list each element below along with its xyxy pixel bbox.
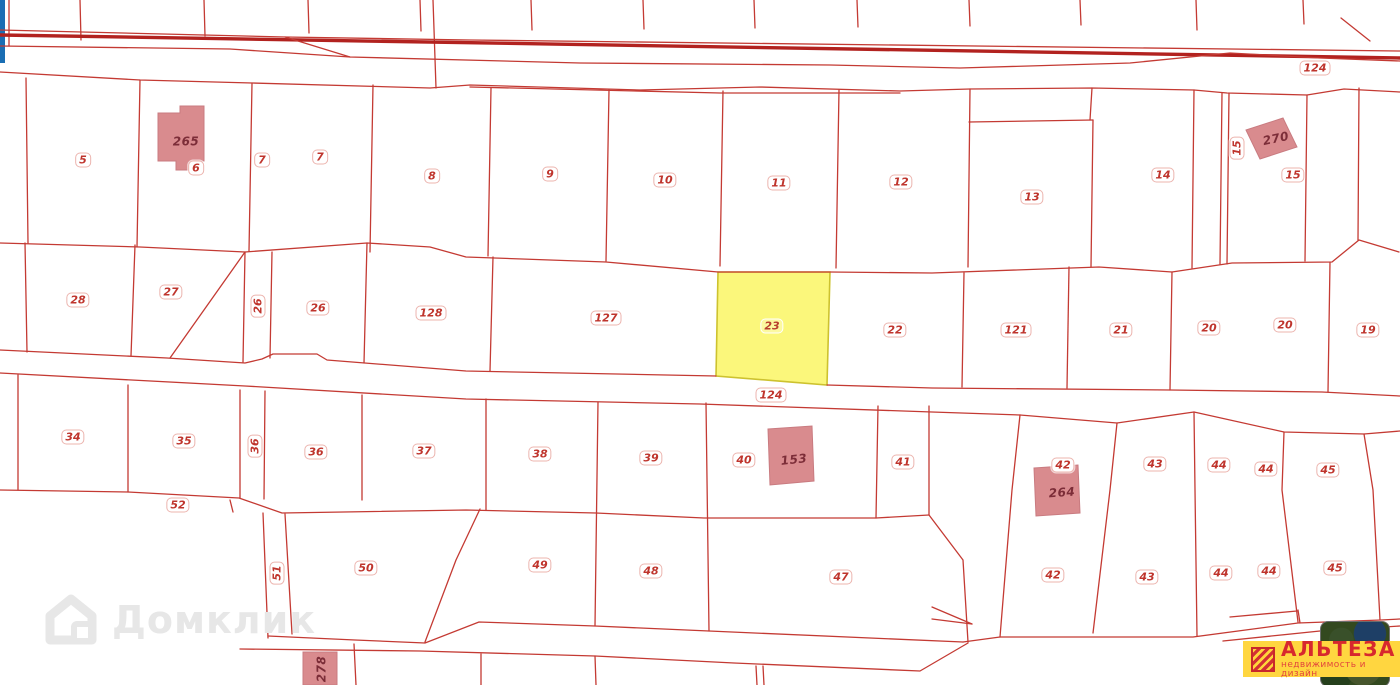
parcel-boundary: [25, 243, 27, 352]
parcel-boundary: [0, 72, 1400, 95]
parcel-label-6[interactable]: 6: [188, 161, 204, 176]
parcel-label-127[interactable]: 127: [591, 311, 622, 326]
parcel-label-43[interactable]: 43: [1143, 457, 1166, 472]
parcel-label-51[interactable]: 51: [270, 561, 285, 584]
parcel-boundary: [1091, 120, 1093, 267]
parcel-boundary: [1305, 95, 1307, 261]
parcel-boundary: [595, 402, 598, 626]
parcel-boundary: [1358, 88, 1359, 240]
parcel-label-45[interactable]: 45: [1316, 463, 1339, 478]
parcel-boundary: [756, 666, 757, 685]
parcel-boundary: [470, 87, 900, 93]
parcel-boundary: [0, 240, 1399, 273]
parcel-label-44[interactable]: 44: [1207, 458, 1230, 473]
parcel-boundary: [0, 350, 716, 376]
parcel-label-23[interactable]: 23: [760, 319, 783, 334]
parcel-boundary: [1020, 412, 1400, 434]
parcel-boundary: [962, 273, 964, 387]
parcel-boundary: [1328, 262, 1330, 392]
parcel-boundary: [170, 252, 245, 358]
parcel-label-47[interactable]: 47: [829, 570, 852, 585]
parcel-label-11[interactable]: 11: [767, 176, 790, 191]
parcel-label-20[interactable]: 20: [1273, 318, 1296, 333]
parcel-boundary: [308, 0, 309, 33]
parcel-label-14[interactable]: 14: [1151, 168, 1174, 183]
parcel-boundary: [595, 656, 596, 685]
parcel-label-8[interactable]: 8: [424, 169, 440, 184]
parcel-label-124[interactable]: 124: [1300, 61, 1331, 76]
parcel-label-34[interactable]: 34: [61, 430, 84, 445]
parcel-boundary: [643, 0, 644, 29]
parcel-boundary: [425, 509, 480, 642]
parcel-label-36[interactable]: 36: [248, 434, 263, 457]
parcel-label-40[interactable]: 40: [732, 453, 755, 468]
parcel-boundary: [1192, 90, 1194, 268]
parcel-boundary: [420, 0, 421, 31]
parcel-boundary: [1090, 88, 1092, 120]
parcel-label-44[interactable]: 44: [1209, 566, 1232, 581]
parcel-boundary: [827, 385, 1400, 396]
alteza-logo-texts: АЛЬТЕЗА недвижимость и дизайн: [1281, 639, 1400, 679]
domclick-watermark-text: Домклик: [112, 601, 316, 639]
parcel-boundary: [1282, 432, 1298, 622]
parcel-boundary: [1220, 93, 1222, 264]
parcel-boundary: [1170, 272, 1172, 390]
parcel-label-19[interactable]: 19: [1356, 323, 1379, 338]
parcel-boundary: [26, 78, 28, 243]
alteza-logo[interactable]: АЛЬТЕЗА недвижимость и дизайн: [1243, 641, 1400, 677]
parcel-boundary: [1303, 0, 1304, 24]
parcel-label-5[interactable]: 5: [75, 153, 91, 168]
parcel-boundary: [1067, 267, 1069, 388]
parcel-boundary: [876, 406, 878, 518]
parcel-boundary: [1341, 18, 1370, 41]
parcel-boundary: [1227, 93, 1229, 264]
parcel-label-44[interactable]: 44: [1257, 564, 1280, 579]
parcel-boundary: [270, 252, 272, 358]
parcel-boundary: [488, 88, 491, 256]
parcel-label-26[interactable]: 26: [306, 301, 329, 316]
parcel-boundary: [857, 0, 858, 27]
parcel-label-36[interactable]: 36: [304, 445, 327, 460]
parcel-boundary: [0, 46, 1400, 68]
building-label-278[interactable]: 278: [316, 656, 329, 683]
parcel-label-42[interactable]: 42: [1051, 458, 1074, 473]
parcel-boundary: [0, 35, 1400, 58]
parcel-boundary: [80, 0, 81, 40]
parcel-label-26[interactable]: 26: [251, 294, 266, 317]
parcel-boundary: [1364, 434, 1380, 620]
parcel-boundary: [1093, 423, 1117, 633]
parcel-label-41[interactable]: 41: [891, 455, 914, 470]
parcel-boundary: [264, 391, 265, 499]
parcel-label-128[interactable]: 128: [416, 306, 447, 321]
parcel-label-121[interactable]: 121: [1001, 323, 1032, 338]
parcel-label-44[interactable]: 44: [1254, 462, 1277, 477]
parcel-label-45[interactable]: 45: [1323, 561, 1346, 576]
parcel-label-20[interactable]: 20: [1197, 321, 1220, 336]
parcel-label-10[interactable]: 10: [653, 173, 676, 188]
alteza-title: АЛЬТЕЗА: [1281, 639, 1400, 659]
parcel-boundary: [249, 83, 252, 251]
parcel-boundary: [754, 0, 755, 28]
parcel-boundary: [963, 637, 1000, 642]
cadastral-map[interactable]: 5265677891011121314152701512428272626128…: [0, 0, 1400, 685]
domclick-watermark: Домклик: [44, 594, 316, 646]
parcel-label-27[interactable]: 27: [159, 285, 182, 300]
parcel-boundary: [243, 252, 245, 362]
parcel-boundary: [230, 500, 233, 512]
parcel-label-124[interactable]: 124: [756, 388, 787, 403]
parcel-label-39[interactable]: 39: [639, 451, 662, 466]
parcel-boundary: [969, 120, 1093, 122]
parcel-label-9[interactable]: 9: [542, 167, 558, 182]
parcel-label-13[interactable]: 13: [1020, 190, 1043, 205]
parcel-label-38[interactable]: 38: [528, 447, 551, 462]
parcel-label-42[interactable]: 42: [1041, 568, 1064, 583]
parcel-boundary: [969, 0, 970, 26]
parcel-label-52[interactable]: 52: [166, 498, 189, 513]
parcel-label-37[interactable]: 37: [412, 444, 435, 459]
parcel-label-43[interactable]: 43: [1135, 570, 1158, 585]
parcel-label-15[interactable]: 15: [1230, 136, 1245, 159]
parcel-label-7[interactable]: 7: [312, 150, 328, 165]
parcel-label-49[interactable]: 49: [528, 558, 551, 573]
parcel-boundary: [531, 0, 532, 30]
parcel-label-15[interactable]: 15: [1281, 168, 1304, 183]
parcel-label-35[interactable]: 35: [172, 434, 195, 449]
parcel-boundary: [490, 257, 493, 371]
parcel-boundary: [763, 666, 764, 685]
parcel-boundary: [836, 90, 839, 268]
parcel-label-28[interactable]: 28: [66, 293, 89, 308]
blue-boundary-line: [0, 0, 5, 63]
parcel-boundary: [204, 0, 205, 36]
parcel-boundary: [606, 90, 609, 261]
parcel-boundary: [240, 643, 968, 671]
parcel-boundary: [131, 245, 135, 356]
parcel-boundary: [1000, 415, 1020, 637]
alteza-logo-icon: [1251, 647, 1275, 672]
parcel-boundary: [706, 403, 709, 631]
building-label-153[interactable]: 153: [780, 452, 808, 468]
parcel-boundary: [1080, 0, 1081, 25]
domclick-house-icon: [44, 594, 98, 646]
parcel-label-22[interactable]: 22: [883, 323, 906, 338]
parcel-boundary: [1230, 611, 1297, 617]
parcel-boundary: [364, 243, 367, 363]
building-label-264[interactable]: 264: [1048, 486, 1075, 501]
parcel-label-7[interactable]: 7: [254, 153, 270, 168]
building-label-265[interactable]: 265: [173, 136, 200, 149]
parcel-boundary: [968, 89, 970, 267]
parcel-label-48[interactable]: 48: [639, 564, 662, 579]
parcel-boundary: [0, 490, 929, 518]
parcel-label-12[interactable]: 12: [889, 175, 912, 190]
map-canvas-svg: [0, 0, 1400, 685]
parcel-boundary: [268, 622, 963, 643]
parcel-boundary: [433, 0, 436, 88]
parcel-boundary: [137, 80, 140, 247]
parcel-label-21[interactable]: 21: [1109, 323, 1132, 338]
parcel-boundary: [0, 373, 1020, 415]
parcel-label-50[interactable]: 50: [354, 561, 377, 576]
parcel-boundary: [370, 85, 373, 252]
alteza-subtitle: недвижимость и дизайн: [1281, 661, 1400, 679]
parcel-boundary: [1196, 0, 1197, 30]
parcel-boundary: [1194, 412, 1197, 636]
parcel-boundary: [720, 91, 723, 266]
